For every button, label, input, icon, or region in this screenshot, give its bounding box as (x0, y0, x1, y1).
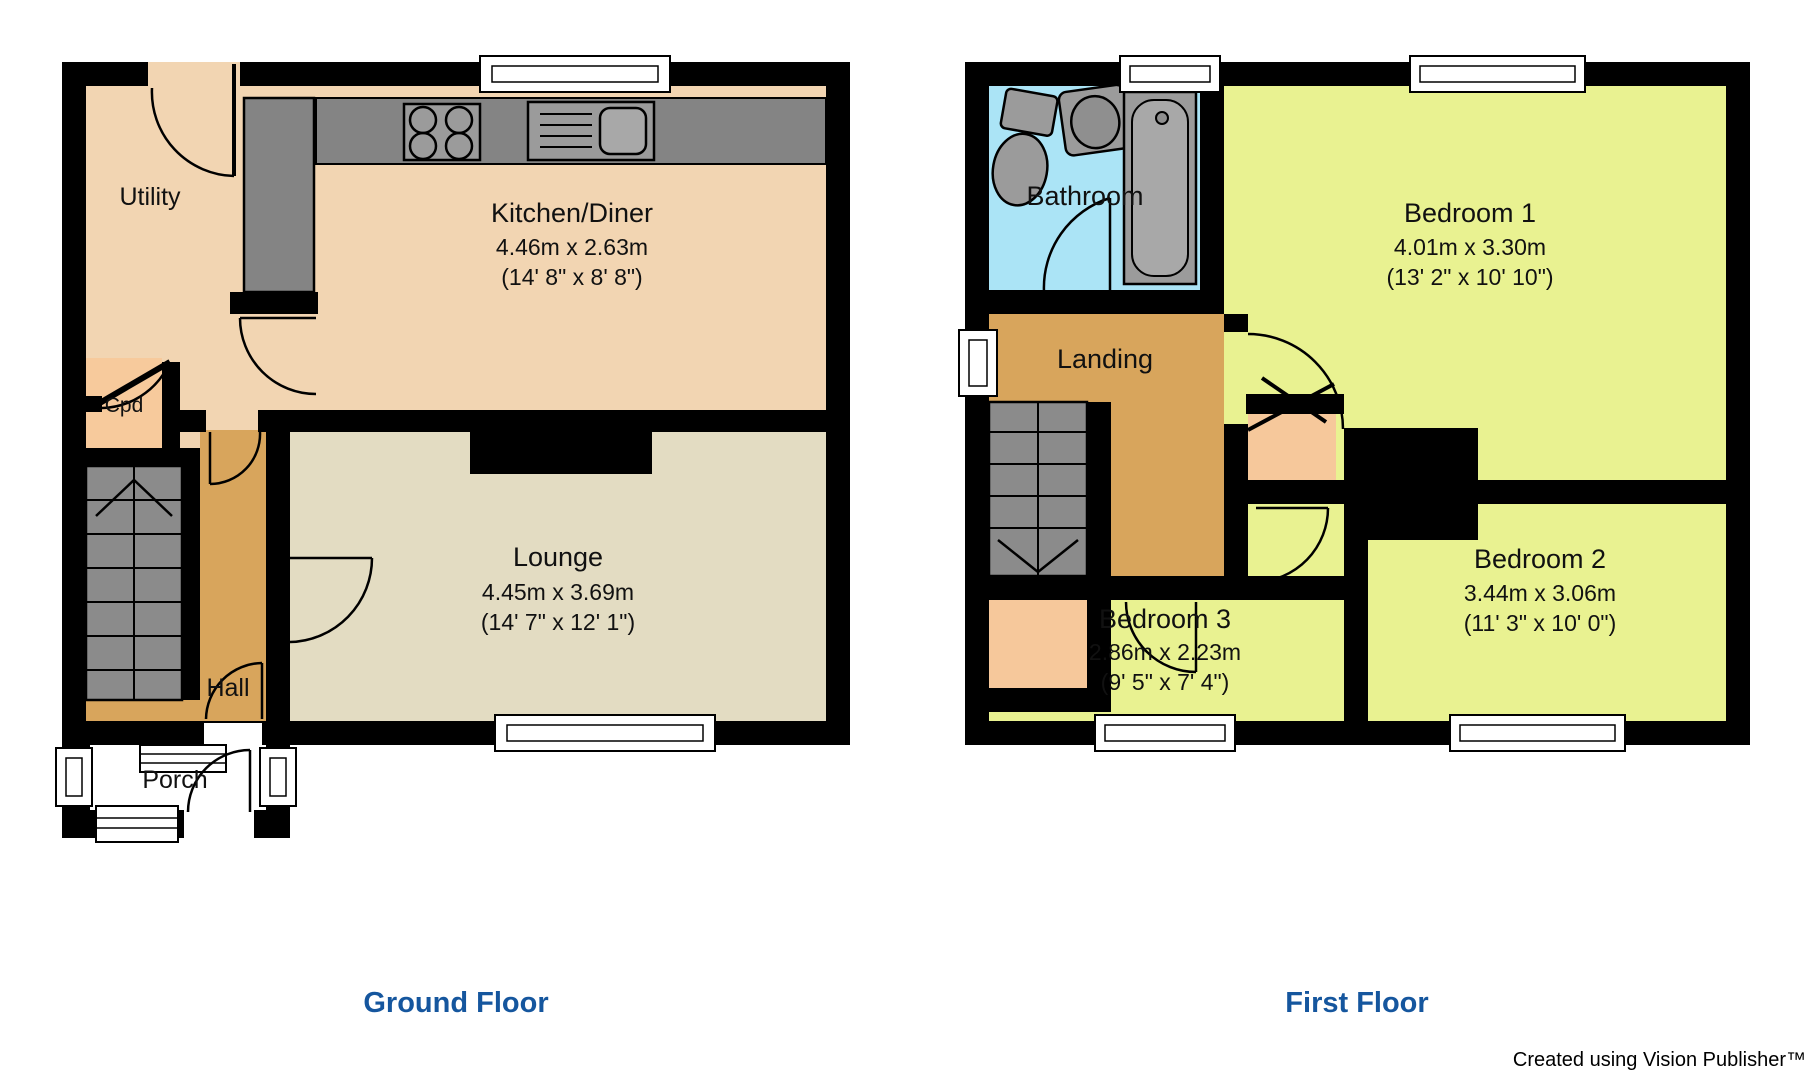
hall-lounge-wall (266, 410, 290, 721)
ff-stairs-right-wall (1087, 402, 1111, 712)
landing-window-icon (959, 330, 997, 396)
bedroom3-window-icon (1095, 715, 1235, 751)
hob-icon (404, 104, 480, 160)
kitchen-dims-imperial: (14' 8" x 8' 8") (501, 264, 642, 290)
bedroom1-dims-metric: 4.01m x 3.30m (1394, 234, 1546, 260)
bedroom1-window-icon (1410, 56, 1585, 92)
first-floor-title: First Floor (1285, 987, 1428, 1019)
ground-floor-plan: Utility Kitchen/Diner 4.46m x 2.63m (14'… (56, 56, 850, 842)
porch-window-right-icon (260, 748, 296, 806)
bedroom2-label: Bedroom 2 (1474, 544, 1606, 574)
bedroom1-dims-imperial: (13' 2" x 10' 10") (1386, 264, 1553, 290)
utility-entry-gap (148, 62, 240, 86)
lounge-dims-imperial: (14' 7" x 12' 1") (481, 609, 635, 635)
watermark: Created using Vision Publisher™ (1513, 1049, 1806, 1071)
kitchen-window-icon (480, 56, 670, 92)
lounge-dims-metric: 4.45m x 3.69m (482, 579, 634, 605)
divider-left (1224, 480, 1252, 504)
bedroom3-label: Bedroom 3 (1099, 604, 1231, 634)
porch-window-left-icon (56, 748, 92, 806)
ff-cupboard2-bottom-wall (989, 688, 1111, 712)
bedroom2-dims-metric: 3.44m x 3.06m (1464, 580, 1616, 606)
utility-label: Utility (119, 183, 181, 211)
front-threshold (204, 723, 262, 747)
utility-stub-wall (230, 292, 318, 314)
bedroom2-bedroom3-wall (1344, 504, 1368, 721)
bathroom-bedroom1-wall (1200, 86, 1224, 314)
bathroom-label: Bathroom (1026, 181, 1143, 211)
sink-icon (528, 102, 654, 160)
lounge-window-icon (495, 715, 715, 751)
hall-label: Hall (206, 674, 249, 702)
floorplan-page: Utility Kitchen/Diner 4.46m x 2.63m (14'… (0, 0, 1815, 1080)
kitchen-label: Kitchen/Diner (491, 198, 653, 228)
bedroom2-window-icon (1450, 715, 1625, 751)
bedroom1-label: Bedroom 1 (1404, 198, 1536, 228)
floorplan-canvas: Utility Kitchen/Diner 4.46m x 2.63m (14'… (0, 0, 1815, 1080)
cpd-label: Cpd (105, 394, 144, 417)
first-stairs (989, 402, 1087, 576)
bedroom1-wall-stub-top (1224, 314, 1248, 332)
bathroom-bottom-wall-right (1114, 290, 1224, 314)
bedroom3-dims-imperial: (9' 5" x 7' 4") (1101, 669, 1230, 695)
cpd-right-wall (162, 362, 180, 448)
lounge-chimney-breast (470, 410, 652, 474)
kitchen-dims-metric: 4.46m x 2.63m (496, 234, 648, 260)
utility-unit (244, 98, 314, 292)
stairs-right-wall (182, 448, 200, 700)
bathroom-bottom-wall-left (989, 290, 1040, 314)
porch-door-gap (184, 808, 254, 840)
first-floor-plan: Bathroom Landing Bedroom 1 4.01m x 3.30m… (959, 56, 1750, 751)
bedroom2-dims-imperial: (11' 3" x 10' 0") (1464, 610, 1617, 636)
porch-label: Porch (142, 766, 207, 794)
ground-stairs (86, 466, 182, 700)
landing-label: Landing (1057, 344, 1153, 374)
porch-window-bottom-icon (96, 806, 178, 842)
bathroom-window-icon (1120, 56, 1220, 92)
hall-top-wall-right (258, 410, 266, 432)
ground-floor-title: Ground Floor (363, 987, 548, 1019)
landing-bottom-wall-left (989, 576, 1123, 600)
bedroom1-landing-wall (1224, 424, 1248, 600)
basin-icon (1058, 84, 1132, 157)
ff-cupboard2-floor (989, 600, 1087, 688)
lounge-label: Lounge (513, 542, 603, 572)
bedroom3-dims-metric: 2.86m x 2.23m (1089, 639, 1241, 665)
